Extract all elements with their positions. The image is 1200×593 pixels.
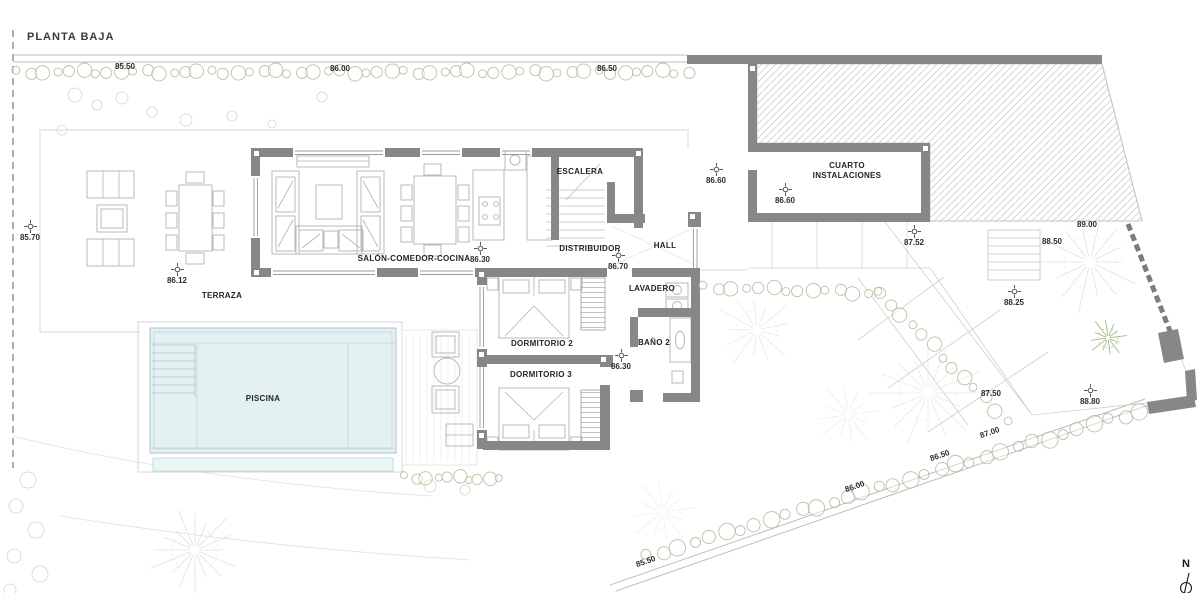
north-label: N: [1176, 558, 1196, 570]
level-crosshair-icon: [1008, 285, 1021, 298]
elevation-label-87-50: 87.50: [969, 390, 1013, 399]
level-crosshair-icon: [615, 349, 628, 362]
north-arrow-icon: [1178, 571, 1194, 593]
north-arrow: N: [1176, 558, 1196, 593]
elevation-marker-86-12: 86.12: [155, 263, 199, 286]
level-crosshair-icon: [24, 220, 37, 233]
room-label-dormitorio-2: DORMITORIO 2: [497, 339, 587, 349]
floor-plan-sheet: PLANTA BAJA ESCALERA CUARTO INSTALACIONE…: [0, 0, 1200, 593]
elevation-marker-86-60-hall: 86.60: [694, 163, 738, 186]
retaining-walls: [1128, 224, 1197, 414]
room-label-dormitorio-3: DORMITORIO 3: [496, 370, 586, 380]
elevation-marker-85-70: 85.70: [8, 220, 52, 243]
room-label-bano-2: BAÑO 2: [624, 338, 684, 348]
elevation-marker-86-60-cuarto: 86.60: [763, 183, 807, 206]
level-crosshair-icon: [1084, 384, 1097, 397]
elevation-marker-88-25: 88.25: [992, 285, 1036, 308]
level-crosshair-icon: [779, 183, 792, 196]
room-label-salon-comedor-cocina: SALÓN-COMEDOR-COCINA: [354, 254, 474, 264]
elevation-marker-86-70: 86.70: [596, 249, 640, 272]
room-label-cuarto-instalaciones: CUARTO INSTALACIONES: [802, 161, 892, 182]
elevation-label-86-50-top: 86.50: [585, 65, 629, 74]
room-label-hall: HALL: [640, 241, 690, 251]
room-label-lavadero: LAVADERO: [617, 284, 687, 294]
pool-overflow-channel: [153, 458, 393, 471]
elevation-label-88-50: 88.50: [1030, 238, 1074, 247]
elevation-label-85-50-top: 85.50: [103, 63, 147, 72]
page-title: PLANTA BAJA: [27, 31, 114, 43]
level-crosshair-icon: [612, 249, 625, 262]
level-crosshair-icon: [474, 242, 487, 255]
elevation-marker-86-30-dorm: 86.30: [599, 349, 643, 372]
elevation-marker-88-80: 88.80: [1068, 384, 1112, 407]
level-crosshair-icon: [908, 225, 921, 238]
room-label-escalera: ESCALERA: [545, 167, 615, 177]
level-crosshair-icon: [710, 163, 723, 176]
level-crosshair-icon: [171, 263, 184, 276]
elevation-label-86-00-top: 86.00: [318, 65, 362, 74]
room-label-terraza: TERRAZA: [187, 291, 257, 301]
hatched-service-area: [757, 64, 1142, 221]
elevation-marker-87-52: 87.52: [892, 225, 936, 248]
elevation-marker-86-30-salon: 86.30: [458, 242, 502, 265]
room-label-piscina: PISCINA: [228, 394, 298, 404]
elevation-label-89-00: 89.00: [1065, 221, 1109, 230]
